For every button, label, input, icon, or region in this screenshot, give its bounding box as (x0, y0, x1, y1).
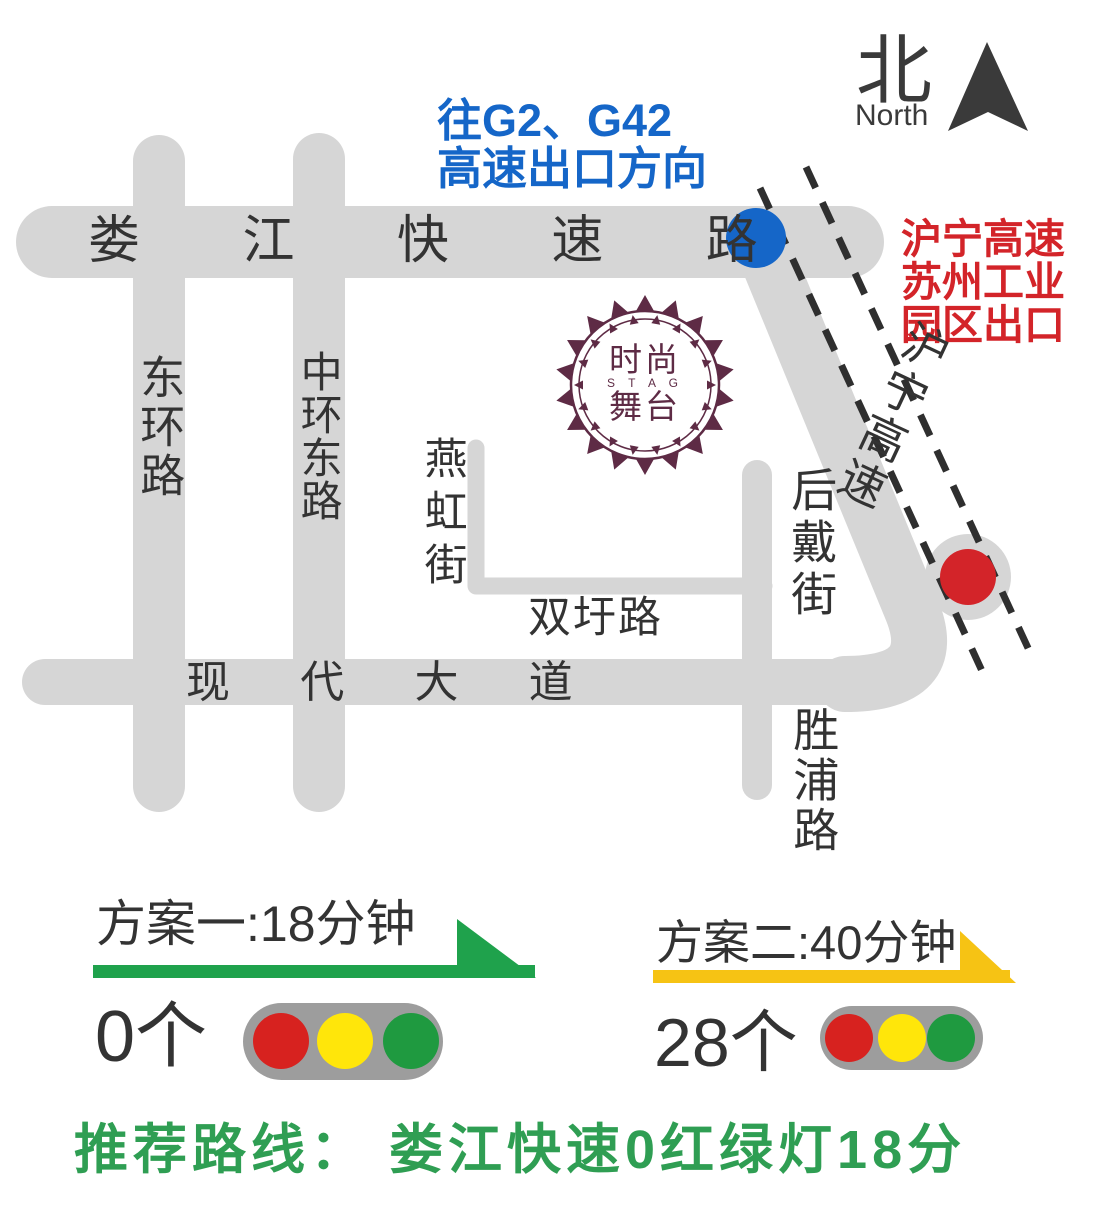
huning-exit-dot (940, 549, 996, 605)
yellow-light (878, 1014, 926, 1062)
green-light (383, 1013, 439, 1069)
north-label-en: North (855, 100, 928, 132)
road-label-shuangwei: 双圩路 (528, 596, 663, 641)
road-label-zhonghuandong: 中环东路 (296, 350, 340, 522)
north-arrow-icon (948, 42, 1028, 131)
road-label-loujiang: 娄 江 快 速 路 (88, 214, 802, 269)
red-light (825, 1014, 873, 1062)
road-label-yanhong: 燕虹街 (419, 436, 464, 595)
road-label-shengpu: 胜浦路 (789, 706, 837, 856)
red-light (253, 1013, 309, 1069)
plan1-traffic-light-icon (243, 1003, 443, 1080)
huning-exit-note-line2: 苏州工业 (901, 261, 1065, 304)
route-map-poster: 北 North 往G2、G42 高速出口方向 沪宁高速 苏州工业 园区出口 娄 … (0, 0, 1111, 1222)
recommended-route-text: 推荐路线： 娄江快速0红绿灯18分 (74, 1122, 966, 1179)
plan2-lights-count: 28个 (654, 1008, 798, 1079)
venue-logo-zh-top: 时尚 (575, 343, 715, 377)
huning-exit-note-line1: 沪宁高速 (901, 218, 1065, 261)
g2-exit-note-line1: 往G2、G42 (437, 97, 672, 144)
venue-logo-text: 时尚 S T A G 舞台 (575, 343, 715, 424)
plan2-traffic-light-icon (820, 1006, 983, 1070)
plan1-title: 方案一:18分钟 (96, 898, 416, 951)
yellow-light (317, 1013, 373, 1069)
green-light (927, 1014, 975, 1062)
road-label-xiandai: 现 代 大 道 (186, 660, 602, 706)
plan2-title: 方案二:40分钟 (656, 918, 956, 967)
plan1-lights-count: 0个 (95, 1000, 207, 1076)
venue-logo-zh-bottom: 舞台 (575, 390, 715, 424)
road-yanhong-shuangwei (476, 448, 764, 586)
road-label-donghuan: 东环路 (135, 354, 182, 501)
g2-exit-note-line2: 高速出口方向 (437, 145, 707, 192)
